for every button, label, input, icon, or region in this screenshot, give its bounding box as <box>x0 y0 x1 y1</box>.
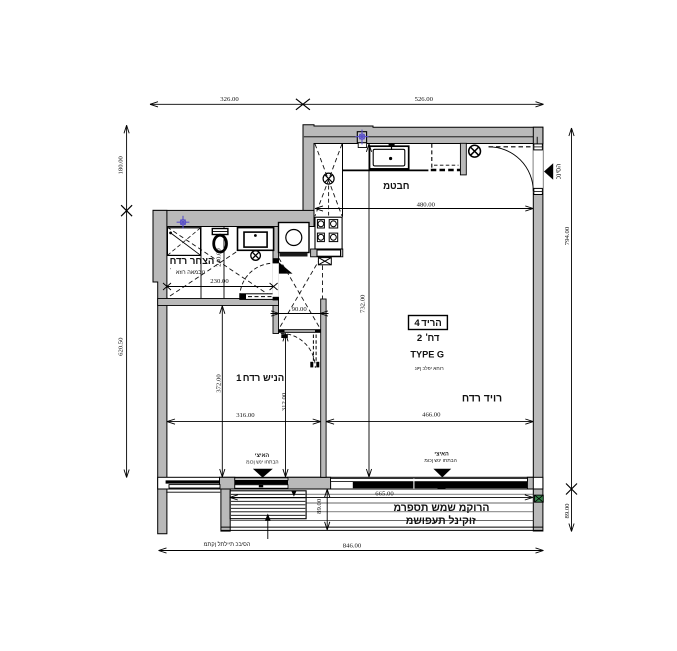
svg-text:89.00: 89.00 <box>564 503 571 519</box>
svg-text:האיצי: האיצי <box>255 453 270 459</box>
svg-text:הסינכ: הסינכ <box>555 164 562 180</box>
svg-text:794.00: 794.00 <box>564 226 571 245</box>
svg-text:526.00: 526.00 <box>415 96 434 103</box>
svg-text:הריד: הריד <box>421 318 442 329</box>
svg-text:665.00: 665.00 <box>375 490 394 497</box>
svg-text:רוחא יפלכ ףונ: רוחא יפלכ ףונ <box>415 365 444 372</box>
svg-text:230.00: 230.00 <box>210 278 229 285</box>
svg-text:326.00: 326.00 <box>220 96 239 103</box>
svg-text:רויד רדח: רויד רדח <box>462 394 502 405</box>
svg-text:1: 1 <box>236 373 242 384</box>
svg-text:הבתחו ינש ןכומ: הבתחו ינש ןכומ <box>246 460 278 466</box>
svg-text:טבמאה רוזא: טבמאה רוזא <box>176 270 206 276</box>
svg-text:הבתחו ינש ןכומ: הבתחו ינש ןכומ <box>424 458 456 464</box>
svg-text:732.00: 732.00 <box>359 294 366 313</box>
svg-text:620.50: 620.50 <box>118 337 125 356</box>
svg-text:דח: דח <box>427 333 439 344</box>
svg-text:חבטמ: חבטמ <box>383 181 409 192</box>
svg-text:הצחר רדח: הצחר רדח <box>170 256 215 267</box>
svg-text:316.00: 316.00 <box>236 412 255 419</box>
svg-text:312.00: 312.00 <box>281 392 288 411</box>
svg-text:480.00: 480.00 <box>417 201 436 208</box>
svg-text:הסיבכ תיילתל ןקתמ: הסיבכ תיילתל ןקתמ <box>204 541 251 548</box>
svg-text:האיצי: האיצי <box>434 452 449 458</box>
svg-text:TYPE G: TYPE G <box>410 350 444 360</box>
svg-text:240.00: 240.00 <box>216 248 223 267</box>
svg-text:372.00: 372.00 <box>215 374 222 393</box>
svg-text:180.00: 180.00 <box>118 155 125 174</box>
svg-text:466.00: 466.00 <box>422 411 441 418</box>
svg-text:4: 4 <box>414 318 420 329</box>
svg-text:': ' <box>426 332 428 343</box>
svg-text:הניש רדח: הניש רדח <box>243 373 284 384</box>
svg-text:זוקינל תעפושמ: זוקינל תעפושמ <box>406 515 476 527</box>
svg-text:90.00: 90.00 <box>292 306 308 313</box>
svg-text:': ' <box>170 268 171 274</box>
svg-text:846.00: 846.00 <box>343 542 362 549</box>
svg-text:הרוקמ שמש תספרמ: הרוקמ שמש תספרמ <box>393 502 489 514</box>
svg-text:89.00: 89.00 <box>316 498 323 514</box>
svg-text:2: 2 <box>417 333 422 344</box>
